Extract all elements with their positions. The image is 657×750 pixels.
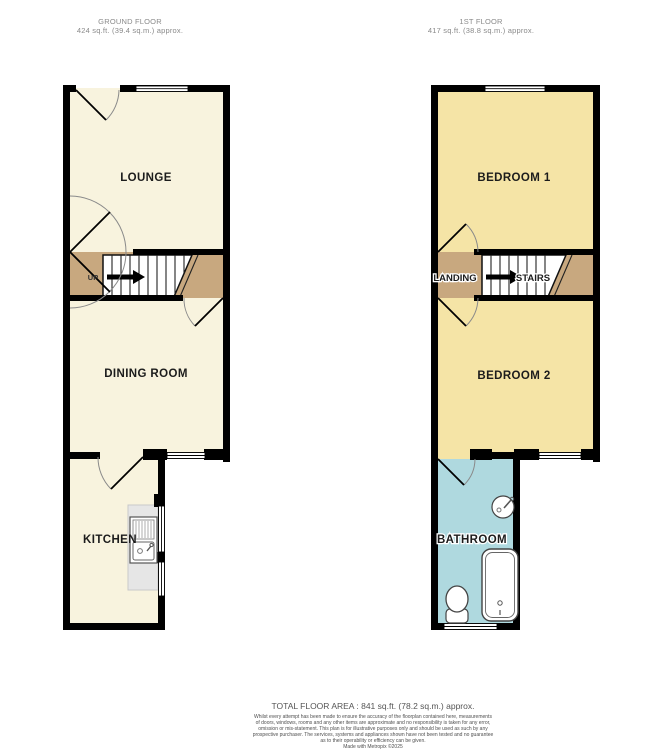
lounge-label: LOUNGE bbox=[120, 172, 172, 184]
landing-label: LANDING bbox=[433, 273, 476, 284]
toilet-icon bbox=[446, 586, 468, 623]
total-floor-area: TOTAL FLOOR AREA : 841 sq.ft. (78.2 sq.m… bbox=[128, 701, 618, 711]
bathtub-icon bbox=[482, 549, 518, 621]
metropix-credit: Made with Metropix ©2025 bbox=[128, 745, 618, 750]
stairs-label: STAIRS bbox=[516, 273, 550, 284]
basin-icon bbox=[492, 496, 514, 518]
dining-room-label: DINING ROOM bbox=[104, 368, 188, 380]
floorplan-svg: LOUNGE DINING ROOM KITCHEN UP bbox=[0, 0, 657, 750]
bathroom-label: BATHROOM bbox=[437, 534, 507, 546]
first-floor-plan: BEDROOM 1 LANDING STAIRS BEDROOM 2 BATHR… bbox=[431, 85, 600, 630]
footer: TOTAL FLOOR AREA : 841 sq.ft. (78.2 sq.m… bbox=[128, 701, 618, 750]
floorplan-page: GROUND FLOOR 424 sq.ft. (39.4 sq.m.) app… bbox=[0, 0, 657, 750]
kitchen-label: KITCHEN bbox=[83, 534, 137, 546]
bedroom1-label: BEDROOM 1 bbox=[477, 172, 550, 184]
ground-floor-plan: LOUNGE DINING ROOM KITCHEN UP bbox=[63, 85, 230, 630]
bedroom2-label: BEDROOM 2 bbox=[477, 370, 550, 382]
up-label: UP bbox=[88, 273, 98, 282]
